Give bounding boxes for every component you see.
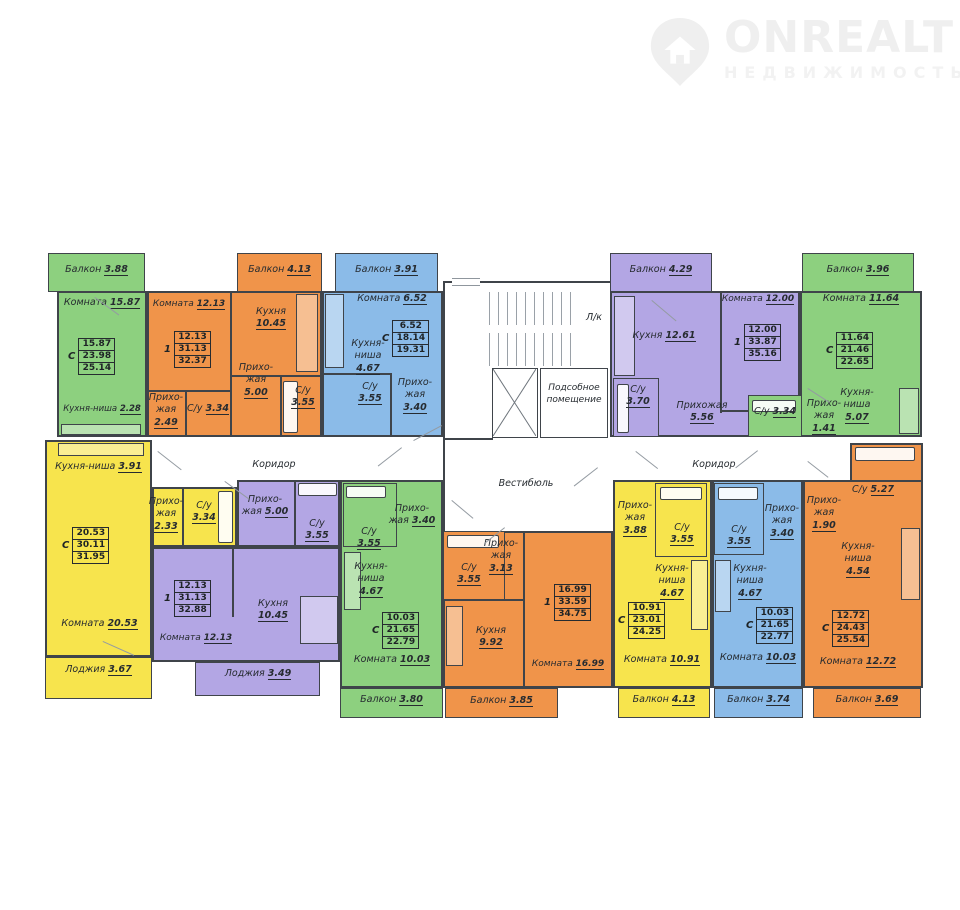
interior-wall [230,291,232,437]
label-a3-bath: С/у 3.70 [620,384,656,409]
stats-a4: С 11.6421.4622.65 [826,332,873,369]
stairwell-wall [443,281,445,533]
elevator-cross-icon [493,369,536,436]
label-a3-room: Комната 12.00 [716,294,800,306]
brand-tagline: НЕДВИЖИМОСТЬ [724,63,960,82]
label-a2-balcony: Балкон 3.91 [335,264,438,276]
label-a3-hall: Прихожая 5.56 [668,400,736,425]
stats-a10: С 10.0321.6522.77 [746,607,793,644]
label-a11-hall: Прихо-жая 1.90 [802,495,846,532]
label-a8-room: Комната 16.99 [524,659,612,671]
door-swing-line [451,500,473,519]
bathtub [660,487,702,500]
bathtub [718,487,758,500]
label-a11-balcony: Балкон 3.69 [813,694,921,706]
label-a4-bath: С/у 3.34 [754,406,796,418]
door-swing-line [157,451,181,470]
label-a7-kitchen: Кухня-ниша 4.67 [349,561,393,598]
interior-wall [232,547,234,617]
label-a8-kitchen: Кухня 9.92 [468,625,514,650]
label-a6-loggia: Лоджия 3.49 [214,668,302,680]
label-a5-room: Комната 20.53 [52,618,147,630]
label-a11-bath: С/у 5.27 [852,484,894,496]
bathtub [855,447,915,461]
stats-a3: 1 12.0033.8735.16 [734,324,781,361]
label-a1-bath2: С/у 3.55 [284,385,322,410]
stair-flight [489,292,577,325]
door-swing-line [378,447,402,466]
house-pin-icon [646,16,714,88]
kitchen-counter [901,528,920,600]
kitchen-counter [300,596,338,644]
floorplan-image: ONREALT НЕДВИЖИМОСТЬ Балкон 3.88 Комната… [0,0,960,910]
label-a0-balcony: Балкон 3.88 [48,264,145,276]
label-a4-balcony: Балкон 3.96 [802,264,914,276]
label-a3-balcony: Балкон 4.29 [610,264,712,276]
label-a9-balcony: Балкон 4.13 [618,694,710,706]
kitchen-counter [899,388,919,434]
stats-a9: С 10.9123.0124.25 [618,602,665,639]
bathtub [346,486,386,498]
window [452,278,480,286]
label-a1-balcony: Балкон 4.13 [237,264,322,276]
label-a9-kitchen: Кухня-ниша 4.67 [650,563,694,600]
label-a10-bath: С/у 3.55 [720,524,758,549]
door-swing-line [574,467,598,486]
kitchen-counter [446,606,463,666]
label-a7-room: Комната 10.03 [346,654,438,666]
kitchen-counter [58,443,144,456]
label-stairs: Л/к [578,312,610,324]
kitchen-counter [325,294,344,368]
label-a11-room: Комната 12.72 [808,656,908,668]
stats-a8: 1 16.9933.5934.75 [544,584,591,621]
door-swing-line [635,451,658,469]
label-utility: Подсобное помещение [541,383,607,406]
label-a5-hall: Прихо-жая 2.33 [146,496,186,533]
label-a11-kitchen: Кухня-ниша 4.54 [834,541,882,578]
stair-flight [489,333,577,366]
stats-a6: 1 12.1331.1332.88 [164,580,211,617]
onrealt-logo: ONREALT НЕДВИЖИМОСТЬ [646,16,960,88]
label-a10-hall: Прихо-жая 3.40 [760,503,804,540]
label-a1-bath1: С/у 3.34 [187,403,229,415]
label-a5-loggia: Лоджия 3.67 [52,664,145,676]
label-a5-kitchen: Кухня-ниша 3.91 [52,461,145,473]
label-a1-hall1: Прихо-жая 2.49 [146,392,186,429]
interior-wall [720,291,722,413]
label-a6-kitchen: Кухня 10.45 [250,598,296,623]
label-a10-room: Комната 10.03 [714,652,802,664]
interior-wall [443,599,523,601]
stats-a7: С 10.0321.6522.79 [372,612,419,649]
label-a6-bath: С/у 3.55 [298,518,336,543]
kitchen-counter [61,424,141,435]
label-a1-kitchen: Кухня 10.45 [248,306,294,331]
wall-stub [443,438,493,440]
label-a8-bath: С/у 3.55 [450,562,488,587]
label-a2-hall: Прихо-жая 3.40 [392,377,438,414]
stats-a0: С 15.8723.9825.14 [68,338,115,375]
label-a7-balcony: Балкон 3.80 [340,694,443,706]
label-a10-kitchen: Кухня-ниша 4.67 [728,563,772,600]
elevator-shaft [492,368,538,438]
label-a10-balcony: Балкон 3.74 [714,694,803,706]
label-a2-room: Комната 6.52 [348,293,436,305]
label-a3-kitchen: Кухня 12.61 [628,330,700,342]
label-a0-kitchen: Кухня-ниша 2.28 [57,404,147,415]
brand-name: ONREALT [724,16,960,60]
label-a7-hall: Прихо-жая 3.40 [388,503,436,528]
stats-a11: С 12.7224.4325.54 [822,610,869,647]
label-a1-room: Комната 12.13 [149,299,229,311]
stats-a5: С 20.5330.1131.95 [62,527,109,564]
stats-a2: С 6.5218.1419.31 [382,320,429,357]
stats-a1: 1 12.1331.1332.37 [164,331,211,368]
interior-wall [294,480,296,547]
label-a6-room: Комната 12.13 [154,633,238,645]
label-a5-bath: С/у 3.34 [184,500,224,525]
logo-text: ONREALT НЕДВИЖИМОСТЬ [724,16,960,82]
label-a4-room: Комната 11.64 [811,293,911,305]
label-a8-balcony: Балкон 3.85 [445,695,558,707]
label-vestibule: Вестибюль [488,478,564,490]
label-a9-hall: Прихо-жая 3.88 [612,500,658,537]
interior-wall [280,375,282,437]
label-a2-bath: С/у 3.55 [351,381,389,406]
label-a7-bath: С/у 3.55 [350,526,388,551]
label-a4-hall: Прихо-жая 1.41 [802,398,846,435]
label-a9-bath: С/у 3.55 [662,522,702,547]
label-a9-room: Комната 10.91 [618,654,706,666]
bathtub [298,483,337,496]
label-corridor-left: Коридор [238,459,310,471]
kitchen-counter [296,294,318,372]
label-a1-hall2: Прихо-жая 5.00 [233,362,279,399]
door-swing-line [807,461,828,478]
